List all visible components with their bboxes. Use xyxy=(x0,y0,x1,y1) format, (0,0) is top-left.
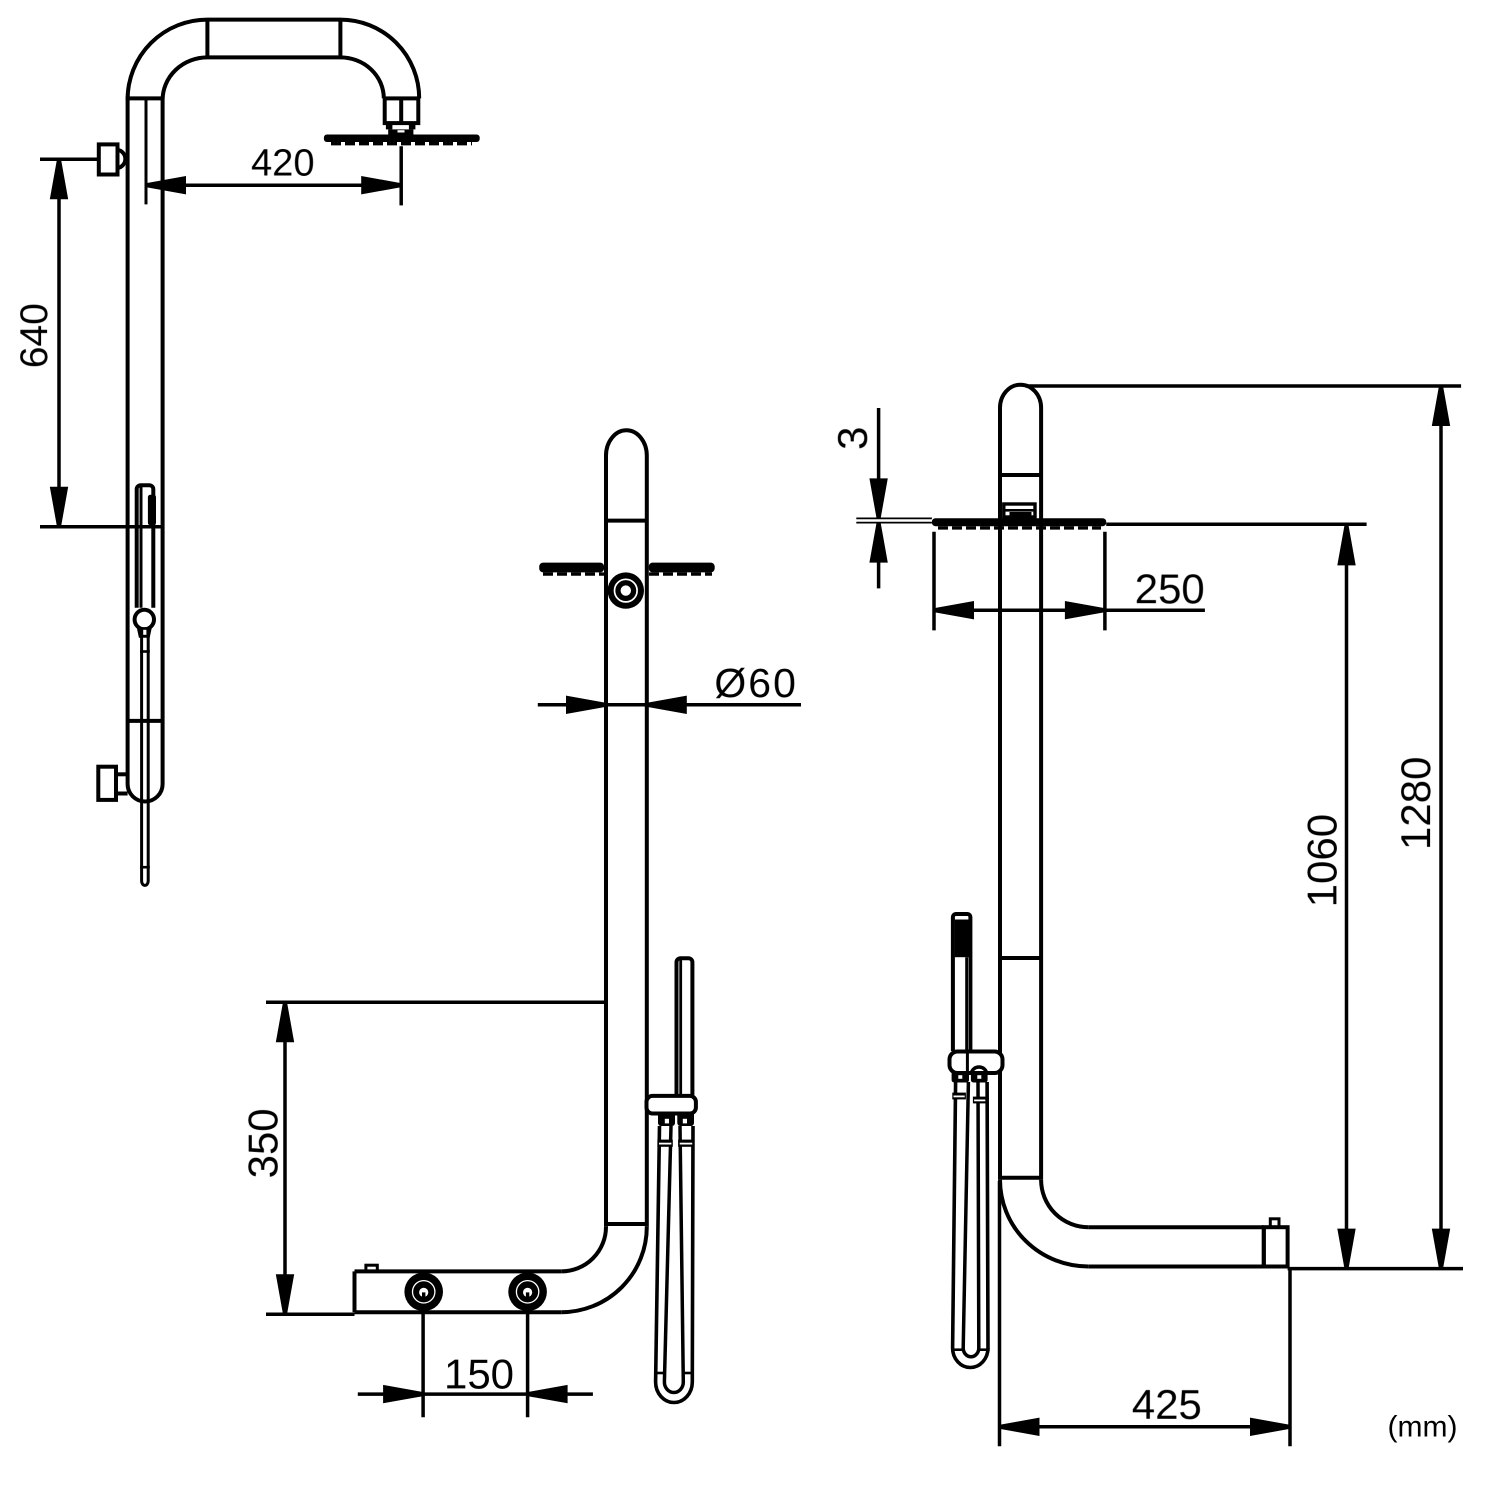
svg-text:3: 3 xyxy=(829,427,876,450)
svg-text:250: 250 xyxy=(1135,565,1205,612)
svg-text:420: 420 xyxy=(251,142,314,184)
svg-text:425: 425 xyxy=(1132,1381,1202,1428)
svg-text:640: 640 xyxy=(13,303,56,368)
svg-text:150: 150 xyxy=(444,1350,514,1397)
svg-text:(mm): (mm) xyxy=(1388,1410,1458,1443)
svg-text:350: 350 xyxy=(239,1108,286,1178)
svg-text:1280: 1280 xyxy=(1392,757,1439,850)
svg-text:Ø60: Ø60 xyxy=(714,660,798,706)
svg-text:1060: 1060 xyxy=(1298,814,1345,907)
